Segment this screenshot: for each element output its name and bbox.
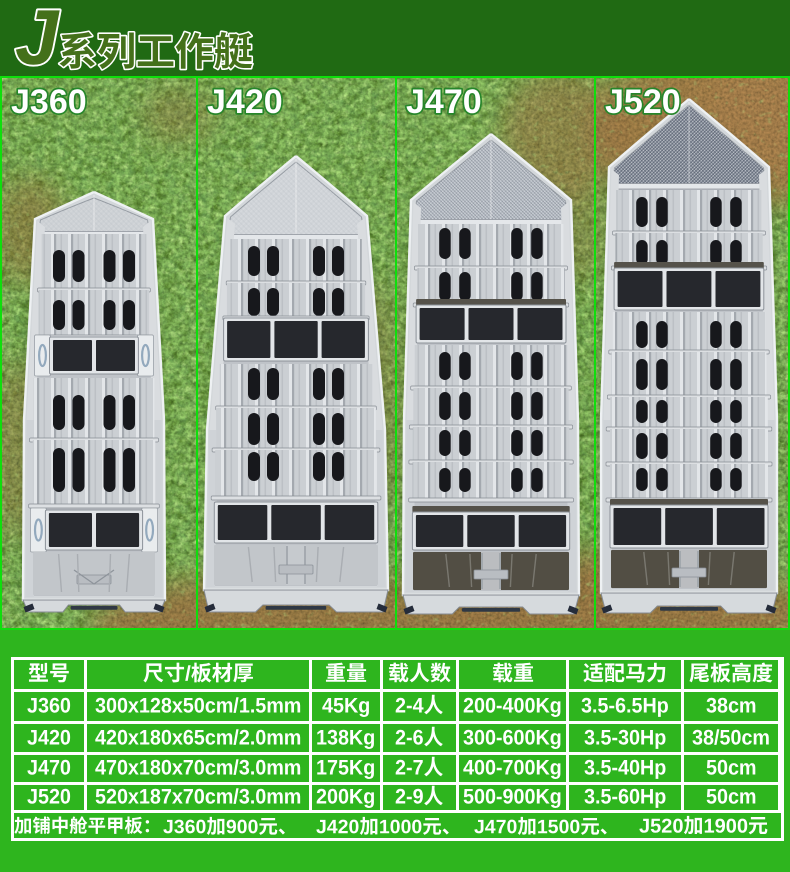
svg-text:J420: J420	[207, 83, 283, 121]
svg-text:J520: J520	[605, 83, 681, 121]
svg-text:J360: J360	[11, 83, 87, 121]
svg-text:J470: J470	[406, 83, 482, 121]
